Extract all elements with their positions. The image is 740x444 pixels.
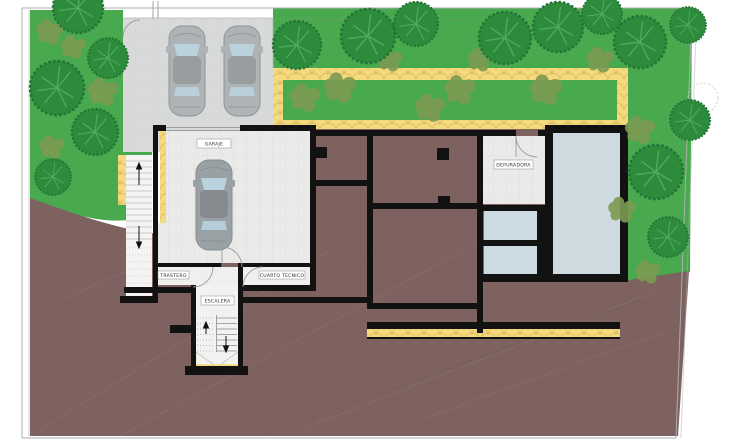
svg-text:ESCALERA: ESCALERA [205,299,231,305]
room-garage-floor [158,131,310,263]
pillar [437,148,449,160]
room-water-treatment-floor [483,136,545,204]
tank-room-1 [484,211,537,240]
pool-basin [553,133,620,274]
tank-room-2 [484,246,537,274]
stone-path-top [273,68,628,80]
garage-west-path [160,131,166,223]
pillar [316,147,327,158]
label-water-treatment: DEPURADORA [494,160,533,169]
label-storage: TRASTERO [158,271,189,279]
label-garage: GARAJE [197,139,231,148]
label-technical-room: CUARTO TECNICO [259,271,305,279]
floor-plan-canvas: GARAJE TRASTERO CUARTO TECNICO ESCALERA … [0,0,740,444]
svg-text:CUARTO TECNICO: CUARTO TECNICO [260,273,305,279]
site-plan-svg: GARAJE TRASTERO CUARTO TECNICO ESCALERA … [0,0,740,444]
label-staircase: ESCALERA [201,296,234,305]
car-driveway-2 [221,26,263,116]
svg-text:DEPURADORA: DEPURADORA [496,163,531,169]
stone-path-south [367,329,620,337]
stone-path-left-link [273,80,283,129]
pillar [438,196,450,207]
car-driveway-1 [166,26,208,116]
car-garage [193,160,235,250]
svg-text:TRASTERO: TRASTERO [159,273,187,279]
svg-text:GARAJE: GARAJE [205,142,224,148]
exterior-stair-wall [118,155,126,205]
